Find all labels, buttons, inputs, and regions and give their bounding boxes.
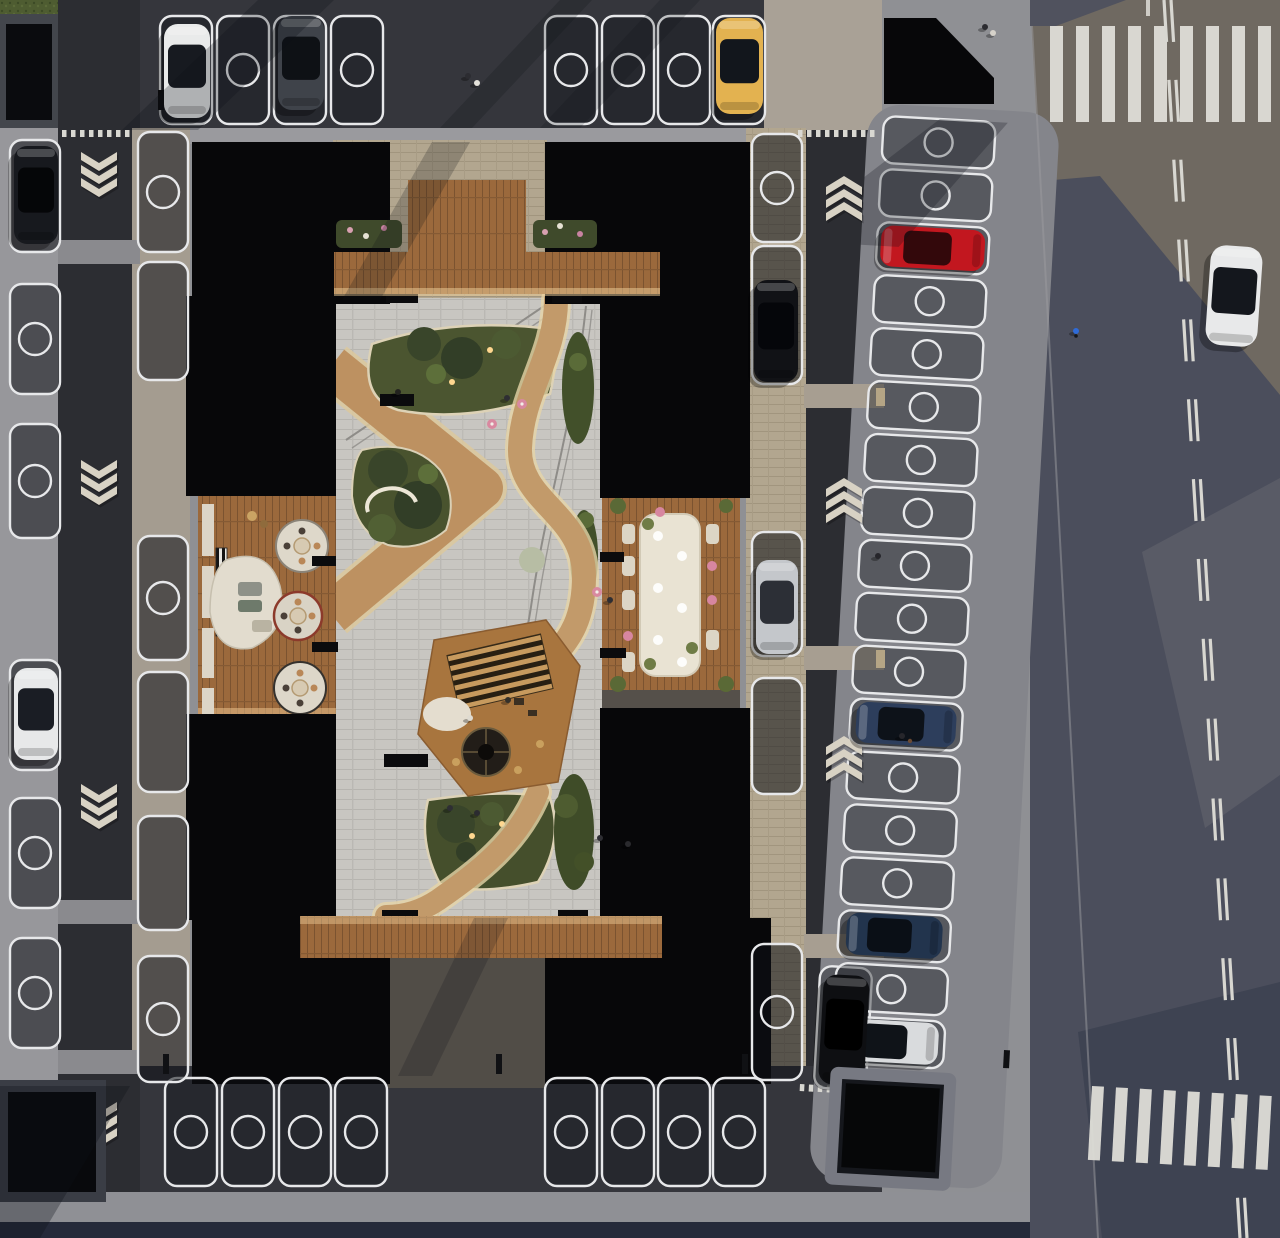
stall-bottom — [335, 1078, 387, 1186]
lane-crossing — [58, 1050, 140, 1074]
scene-root — [0, 0, 1280, 1238]
bench — [202, 688, 214, 714]
roof-right-lower — [600, 708, 750, 920]
stall-strip — [873, 275, 987, 328]
stall-bottom — [545, 1078, 597, 1186]
pink-umbrella — [517, 399, 527, 409]
flower — [542, 229, 548, 235]
tree — [491, 329, 521, 359]
garden-light — [449, 379, 455, 385]
roof-left-lower — [186, 714, 336, 920]
green-strip — [554, 774, 594, 890]
bottom-sidewalk — [0, 1192, 1115, 1224]
flower — [577, 231, 583, 237]
roof-tab — [600, 552, 624, 562]
stall-strip — [840, 857, 954, 910]
stall-left-outer — [10, 284, 60, 394]
lane-crossing — [58, 240, 140, 264]
flower — [557, 223, 563, 229]
stall-bottom — [279, 1078, 331, 1186]
stall-left-outer — [10, 938, 60, 1048]
plate — [653, 583, 663, 593]
garage-opening — [6, 24, 52, 120]
sofa-cushion — [238, 600, 262, 612]
stall-bottom — [658, 1078, 710, 1186]
dining-chair — [706, 524, 719, 544]
tree — [407, 327, 441, 361]
deck-chair — [297, 670, 304, 677]
car-silver-inner — [750, 560, 798, 660]
stall-strip — [858, 539, 972, 592]
dining-chair — [706, 630, 719, 650]
sofa-cushion — [252, 620, 272, 632]
bollard — [742, 1054, 748, 1074]
bollard — [163, 1054, 169, 1074]
ramp-bottom-right-pit — [841, 1083, 940, 1172]
deck-chair — [309, 613, 316, 620]
flower — [363, 233, 369, 239]
pink-umbrella — [592, 587, 602, 597]
deck-chair — [295, 599, 302, 606]
bench — [202, 504, 214, 556]
tree — [569, 353, 587, 371]
sofa-cushion — [238, 582, 262, 596]
stall-strip — [855, 592, 969, 645]
plate — [653, 635, 663, 645]
plate — [677, 551, 687, 561]
dining-chair — [622, 590, 635, 610]
deck-plant — [610, 498, 626, 514]
garden-light — [487, 347, 493, 353]
car-black-left — [8, 146, 58, 250]
stall-right-inner — [752, 678, 802, 794]
bollard-tan — [876, 650, 885, 668]
deck-chair — [299, 528, 306, 535]
deck-chair — [311, 685, 318, 692]
stall-left-inner — [138, 132, 188, 252]
bollard — [496, 1054, 502, 1074]
tree — [574, 852, 594, 872]
stall-right-inner — [752, 944, 802, 1080]
table-green — [642, 518, 654, 530]
tree — [554, 794, 578, 818]
tree — [441, 337, 483, 379]
stall-strip — [843, 804, 957, 857]
stall-bottom — [165, 1078, 217, 1186]
car-white-left — [8, 668, 58, 766]
side-table — [528, 710, 537, 716]
tree — [368, 450, 408, 490]
deck-chair — [299, 558, 306, 565]
garden-light — [469, 833, 475, 839]
tree-light — [519, 547, 545, 573]
bicycle-wheel — [1074, 334, 1078, 338]
stall-left-inner — [138, 816, 188, 930]
roof-tab — [600, 648, 626, 658]
top-right-walk — [764, 0, 882, 130]
deck-item — [260, 520, 268, 528]
deck-plant — [610, 676, 626, 692]
stall-left-inner — [138, 262, 188, 380]
deck-chair — [284, 543, 291, 550]
table-green — [686, 642, 698, 654]
side-table — [514, 698, 524, 705]
deck-plant — [719, 499, 733, 513]
stall-strip — [852, 645, 966, 698]
car-dark-suv — [839, 912, 944, 966]
bollard-tan — [876, 388, 885, 406]
stall-left-outer — [10, 798, 60, 908]
stall-left-inner — [138, 536, 188, 660]
plate — [653, 531, 663, 541]
dog — [908, 739, 912, 743]
stall-bottom — [222, 1078, 274, 1186]
pink-seat — [623, 631, 633, 641]
deck-table — [294, 538, 310, 554]
deck-chair — [281, 613, 288, 620]
aerial-render — [0, 0, 1280, 1238]
planter — [533, 220, 597, 248]
stall-bottom — [713, 1078, 765, 1186]
stall-right-inner — [752, 134, 802, 242]
roof-tab — [384, 754, 428, 767]
deck-chair — [314, 543, 321, 550]
plate — [677, 603, 687, 613]
pink-seat — [707, 595, 717, 605]
stool — [452, 758, 460, 766]
deck-chair — [297, 700, 304, 707]
bollard — [1003, 1050, 1010, 1068]
pink-seat — [655, 507, 665, 517]
give-way-ticks — [798, 130, 875, 137]
car-black-inner — [748, 280, 798, 388]
stall-bottom — [602, 1078, 654, 1186]
deck-table — [290, 608, 306, 624]
tree — [426, 364, 446, 384]
stall-left-inner — [138, 672, 188, 792]
plate — [677, 657, 687, 667]
tree — [418, 464, 438, 484]
roof-tab — [312, 556, 336, 566]
stall-top — [331, 16, 383, 124]
bench — [202, 628, 214, 678]
car-yellow — [710, 18, 763, 120]
roof-left-upper — [186, 296, 336, 496]
dining-chair — [622, 524, 635, 544]
deck-plant — [718, 676, 734, 692]
car-road-white — [1198, 244, 1263, 354]
deck-chair — [295, 627, 302, 634]
stall-left-outer — [10, 424, 60, 538]
flower — [347, 227, 353, 233]
stall-strip — [861, 486, 975, 539]
green-strip — [562, 332, 594, 444]
deck-table — [292, 680, 308, 696]
tree — [368, 514, 396, 542]
stall-strip — [864, 433, 978, 486]
road-stub-line — [1146, 0, 1150, 16]
crosswalk-top — [1050, 26, 1271, 122]
deck-item — [247, 511, 257, 521]
lounge-seat — [423, 697, 471, 731]
deck-chair — [283, 685, 290, 692]
roof-right-upper — [600, 296, 750, 498]
table-green — [644, 658, 656, 670]
pink-umbrella — [487, 419, 497, 429]
stool — [514, 766, 522, 774]
lane-crossing — [58, 900, 140, 924]
car-blue-suv — [849, 701, 957, 754]
pink-seat — [707, 561, 717, 571]
fire-pit-center — [478, 744, 494, 760]
stall-strip — [870, 328, 984, 381]
stool — [536, 740, 544, 748]
roof-tab — [312, 642, 338, 652]
